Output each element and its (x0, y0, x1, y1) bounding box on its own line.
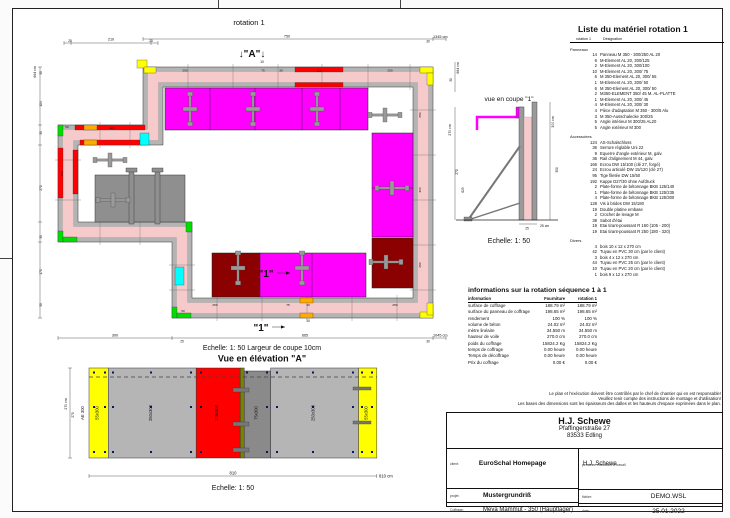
plan-title: rotation 1 (233, 18, 264, 27)
project-cell: projet: Mustergrundriß (447, 489, 578, 503)
dim-label: 270 cm (448, 124, 452, 135)
green-corner (58, 125, 63, 136)
project-value: Mustergrundriß (483, 492, 531, 499)
panel-label: 125 (109, 126, 114, 130)
material-list-title: Liste du matériel rotation 1 (578, 24, 724, 34)
item-name: bois 9 x 12 x 270 cm (600, 272, 638, 278)
column-designation: Désignation (603, 37, 622, 41)
panel-label: 300 (418, 187, 422, 192)
company-city: 83533 Edling (447, 433, 722, 440)
formwork-cell: Coffrage: Meva Mammut - 350 (Hauptlager) (447, 503, 578, 517)
dim-label: 30 (426, 340, 430, 344)
column-fourniture: Fourniture (535, 296, 565, 301)
dim-label: 270 cm (64, 398, 68, 409)
yellow-corner (427, 303, 433, 315)
item-qty: 1 (570, 272, 597, 278)
panel-label: 30 (279, 69, 283, 73)
green-corner (58, 231, 63, 242)
panel-label: 75 (261, 69, 265, 73)
info-name: Prix du coffrage (468, 360, 535, 366)
dim-label: 104 (39, 101, 43, 107)
elevation-adapter (240, 368, 244, 458)
dim-label: 170 (39, 269, 43, 275)
dim-label: 25 (180, 340, 184, 344)
divers-items: 4 bois 10 x 12 x 270 cm 42 Tuyau en PVC … (570, 244, 724, 278)
dim-label: 810 cm (379, 474, 393, 479)
orange-element (84, 140, 97, 145)
pouring-platforms (165, 88, 413, 297)
material-list-header: rotation 1 Désignation (570, 37, 724, 43)
green-corner (177, 313, 191, 318)
section-marker-1: "1" (258, 269, 273, 280)
push-pull-prop (468, 203, 520, 220)
panel-label: 250x300 (311, 404, 316, 421)
info-rotation-value: 0.00 € (565, 360, 597, 366)
elevation-side-label: AE 300 (80, 405, 85, 419)
info-rows: surface de coffrage 188.79 m² 188.79 m² … (468, 303, 597, 366)
material-list: Liste du matériel rotation 1 rotation 1 … (570, 24, 724, 277)
date-value: 25.01.2022 (615, 508, 722, 515)
section-view: vue en coupe "1" 270 cm 270 629 300 cm 3… (448, 96, 559, 245)
date-label: date: (579, 509, 615, 513)
file-cell: fichier: DEMO.WSL (579, 490, 722, 504)
item-qty: 5 (570, 125, 597, 131)
info-table-header: information Fourniture rotation 1 (468, 296, 597, 303)
elevation-panels (89, 368, 377, 458)
panel-label: 250 (392, 303, 397, 307)
section-marker-1: "1" (253, 323, 268, 334)
panel-label: 100 (60, 171, 64, 176)
dim-label: 300 cm (551, 116, 555, 127)
push-pull-prop (468, 146, 520, 220)
info-row: Prix du coffrage 0.00 € 0.00 € (468, 360, 597, 366)
panel-label: 250 (212, 303, 217, 307)
company-address: Pfaffingerstraße 27 (447, 426, 722, 433)
panel-label: 55x300 (364, 405, 369, 419)
panel-label: 75 (286, 303, 290, 307)
section-scale: Echelle: 1: 50 (488, 238, 531, 245)
dim-label: 810 (230, 471, 238, 476)
elevation-title: Vue en élévation "A" (218, 354, 306, 364)
panel-label: 250 (182, 69, 187, 73)
title-block-right: personne effectuant le travail H.J. Sche… (578, 449, 722, 506)
formwork-label: Coffrage: (447, 508, 483, 512)
red-element (295, 83, 343, 88)
material-item: 19 Etai tirant-poussant R 250 (180 - 320… (570, 229, 724, 235)
platform-magenta (260, 253, 366, 297)
dim-label: 664 cm (33, 66, 37, 77)
title-block-header: H.J. Schewe Pfaffingerstraße 27 83533 Ed… (447, 413, 722, 449)
panel-label: 250 (387, 69, 392, 73)
formwork-panel (532, 102, 537, 220)
info-table-title: informations sur la rotation séquence 1 … (468, 287, 597, 294)
green-corner (63, 237, 77, 242)
dim-label: 665 (302, 334, 308, 338)
panel-label: 250x300 (148, 404, 153, 421)
client-cell: client: EuroSchal Homepage (447, 460, 578, 489)
formwork-value: Meva Mammut - 350 (Hauptlager) (483, 507, 573, 513)
cyan-element (140, 133, 149, 145)
section-marker-1-sub: 10 (306, 319, 310, 323)
section-marker-a: ↓"A"↓ (239, 49, 266, 60)
dim-label: 30 (39, 303, 43, 307)
dim-label: 664 cm (456, 62, 460, 73)
disclaimer: Le plan et l'exécution doivent être cont… (400, 391, 721, 406)
elevation-view: Echelle: 1: 50 Largeur de coupe 10cm Vue… (64, 345, 393, 492)
dim-label: 30 (449, 78, 453, 82)
item-name: Angle extérieur M 300 (600, 125, 641, 131)
interior-structure (95, 168, 185, 224)
dim-label: 750 (284, 35, 290, 39)
dim-label: 270 (455, 169, 459, 175)
dim-label: 300 (555, 167, 559, 173)
plan-scale-note: Echelle: 1: 50 Largeur de coupe 10cm (203, 345, 321, 352)
orange-element (300, 313, 313, 318)
dim-label: 300 (112, 334, 118, 338)
panel-label: 55x300 (95, 405, 100, 419)
dim-label: 1045 cm (433, 334, 448, 338)
panel-label: 125 (316, 69, 321, 73)
section-title: vue en coupe "1" (484, 96, 534, 103)
dim-label: 30 (39, 131, 43, 135)
yellow-corner (144, 67, 156, 73)
file-label: fichier: (579, 495, 615, 499)
dim-label: 270 (39, 185, 43, 191)
elevation-scale: Echelle: 1: 50 (212, 485, 255, 492)
dim-label: 30 (39, 71, 43, 75)
panel-label: 50 (65, 125, 69, 129)
client-value: EuroSchal Homepage (447, 460, 578, 467)
cyan-element (175, 267, 184, 285)
worker-label: personne effectuant le travail (582, 463, 625, 467)
panel-label: 250 (418, 262, 422, 267)
drawing-sheet-stage: rotation 1 (0, 0, 730, 518)
material-item: 1 bois 9 x 12 x 270 cm (570, 272, 724, 278)
item-name: Etai tirant-poussant R 250 (180 - 320) (600, 229, 670, 235)
dim-label: 25 (68, 39, 72, 43)
column-rotation: rotation 1 (565, 296, 597, 301)
column-qty: rotation 1 (576, 37, 591, 41)
platform-bracket (477, 117, 521, 130)
dim-label: 25 (149, 39, 153, 43)
project-label: projet: (447, 494, 483, 498)
dim-label: 270 (71, 412, 75, 418)
yellow-corner (420, 67, 433, 73)
panel-label: 75x300 (253, 405, 258, 419)
dim-label: 25 (525, 227, 529, 231)
panel-label: 30 (306, 303, 310, 307)
brace-icon (368, 108, 402, 122)
worker-cell: personne effectuant le travail H.J. Sche… (579, 461, 722, 490)
section-marker-a-sub: 10 (260, 60, 264, 64)
file-value: DEMO.WSL (615, 493, 722, 500)
yellow-corner (137, 60, 147, 68)
dim-label: 30 (39, 235, 43, 239)
dim-label: 1345 cm (433, 35, 448, 39)
brace-icon (93, 153, 127, 167)
yellow-corner (427, 73, 433, 85)
rotation-info-table: informations sur la rotation séquence 1 … (468, 287, 597, 366)
plan-view: rotation 1 (33, 18, 460, 344)
accessoires-items: 124 AS-Schalschloss 36 Serrure réglable … (570, 140, 724, 235)
orange-element (84, 125, 97, 130)
disclaimer-line: Les bases des dimensions sont les épaiss… (400, 401, 721, 406)
dim-label: 210 (108, 38, 114, 42)
green-corner (186, 222, 192, 232)
green-corner (172, 307, 177, 318)
client-label: client: (450, 462, 459, 466)
dim-label: 30 (426, 40, 430, 44)
item-qty: 19 (570, 229, 597, 235)
material-item: 5 Angle extérieur M 300 (570, 125, 724, 131)
dim-label: 25 cm (540, 224, 549, 228)
red-element (73, 150, 78, 194)
panneaux-items: 14 Panneau M 350 - 300/250 AL 20 6 M-Ele… (570, 52, 724, 130)
column-information: information (468, 296, 535, 301)
title-block: H.J. Schewe Pfaffingerstraße 27 83533 Ed… (446, 412, 723, 507)
company-name: H.J. Schewe (447, 416, 722, 426)
platform-darkred (212, 253, 260, 297)
panel-label: 250 (418, 112, 422, 117)
dim-label: 629 (461, 187, 465, 193)
title-block-left: client: EuroSchal Homepage projet: Muste… (447, 449, 578, 506)
panel-label: 125x300 (214, 404, 219, 421)
info-fourniture-value: 0.00 € (535, 360, 565, 366)
panel-label: 50 (181, 309, 185, 313)
concrete-wall (524, 117, 532, 220)
date-cell: date: 25.01.2022 (579, 504, 722, 518)
